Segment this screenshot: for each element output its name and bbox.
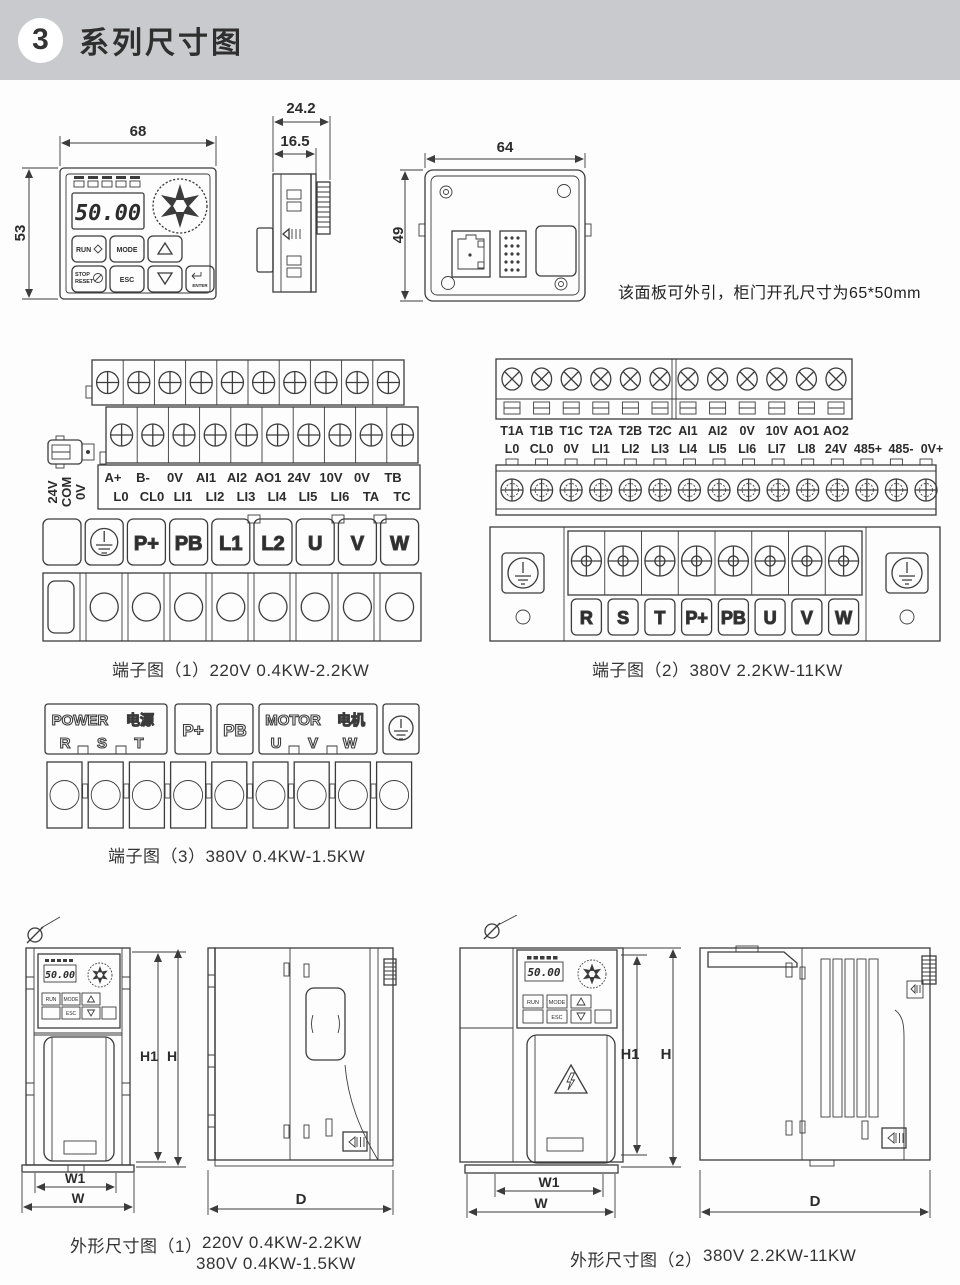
dim-W1: W1 (35, 1171, 116, 1193)
esc-button-label: ESC (120, 277, 134, 284)
terminal-label: LI4 (268, 489, 288, 504)
panel-note: 该面板可外引，柜门开孔尺寸为65*50mm (618, 279, 921, 303)
terminal-label: LI2 (206, 489, 225, 504)
esc-button-label: ESC (66, 1011, 77, 1017)
terminal-label: P+ (134, 533, 159, 555)
terminal-label: CL0 (530, 442, 554, 456)
dim-label: W (72, 1191, 85, 1206)
motor-group: MOTOR 电机 U V W (259, 704, 377, 754)
keypad-buttons: RUN MODE STOP RESET ESC ENTER (72, 236, 214, 292)
terminal-label: LI5 (709, 442, 727, 456)
terminal-label: PB (175, 533, 203, 555)
outline2-caption: 外形尺寸图（2） (570, 1246, 702, 1271)
terminal-label: 24V (287, 470, 310, 485)
terminal-label: 10V (319, 470, 342, 485)
seven-segment-display: 50.00 (72, 193, 144, 229)
terminal-label: B- (136, 470, 150, 485)
terminal-label: LI1 (592, 442, 610, 456)
terminal-label: LI5 (299, 489, 318, 504)
terminal-label: AI1 (678, 424, 698, 438)
run-diamond-icon (94, 245, 102, 253)
terminal-label: AI1 (196, 470, 216, 485)
screw-icons (501, 479, 937, 501)
terminal-label: 0V+ (921, 442, 944, 456)
terminal1-power-drawing: P+ PB L1 L2 U V W (35, 505, 455, 647)
power-en-label: POWER (52, 712, 109, 729)
nameplate (64, 1141, 96, 1154)
terminal3-caption: 端子图（3）380V 0.4KW-1.5KW (108, 842, 365, 867)
terminal-label: 0V (354, 470, 370, 485)
display-value: 50.00 (527, 966, 560, 979)
terminal2-caption: 端子图（2）380V 2.2KW-11KW (592, 656, 843, 681)
up-arrow-icon (158, 243, 172, 254)
terminal-label: TA (363, 489, 380, 504)
terminal-label: A+ (105, 470, 122, 485)
down-arrow-icon (158, 273, 172, 284)
terminal-label: LI3 (237, 489, 256, 504)
knob-icon (578, 960, 606, 988)
terminal-label: U (308, 533, 322, 555)
terminal-label: W (835, 608, 852, 628)
terminal-label: 24V (825, 442, 848, 456)
terminal-label: 485- (888, 442, 913, 456)
terminal-label: LI2 (621, 442, 639, 456)
dim-label: 68 (130, 123, 147, 140)
dim-label: 53 (12, 225, 29, 242)
dim-label: W1 (65, 1171, 86, 1186)
clamp-slots (504, 402, 844, 414)
terminal-label: 0V (564, 442, 580, 456)
terminal-label: L0 (505, 442, 520, 456)
warning-triangle-icon (555, 1065, 587, 1093)
base-flange (465, 1165, 618, 1173)
knob-side (317, 182, 330, 234)
terminal-label: T2C (648, 424, 672, 438)
terminal-label: W (390, 533, 409, 555)
terminal-label: V (351, 533, 365, 555)
reset-button-label: RESET (75, 279, 94, 285)
knob-side (384, 959, 396, 985)
dim-label: H (167, 1048, 177, 1064)
terminal-label: AI2 (708, 424, 728, 438)
power-group: POWER 电源 R S T (45, 704, 167, 754)
display-value: 50.00 (45, 970, 75, 981)
earth-icon (91, 529, 118, 556)
release-arrow-icon (283, 229, 300, 239)
terminal1-caption: 端子图（1）220V 0.4KW-2.2KW (112, 656, 369, 681)
rear-connector (257, 228, 273, 272)
terminal-label: T (134, 735, 143, 752)
outline1-side-drawing: D (200, 915, 405, 1220)
terminal-label: S (97, 735, 107, 752)
mini-keypad: 50.00 RUN MODE ESC (38, 954, 120, 1028)
status-led-row (74, 176, 140, 187)
dim-D: D (700, 1170, 930, 1218)
mid-strip-tabs (506, 459, 932, 465)
power-label-cells: P+ PB L1 L2 U V W (43, 515, 419, 565)
terminal-label: LI6 (738, 442, 756, 456)
terminal-label: 0V (740, 424, 756, 438)
dim-label: 49 (390, 227, 407, 244)
outline2-front-drawing: 50.00 RUN MODE ESC H1 (455, 915, 689, 1225)
terminal-label: CL0 (140, 489, 165, 504)
release-arrow-icon (882, 1128, 906, 1148)
front-cover (44, 1037, 114, 1161)
pin-header (500, 231, 526, 277)
terminal-label: PB (721, 608, 746, 628)
release-arrow-icon (907, 981, 923, 998)
terminal-label: AO1 (794, 424, 820, 438)
outline2-spec: 380V 2.2KW-11KW (703, 1246, 856, 1266)
terminal-label: TC (393, 489, 411, 504)
esc-button-label: ESC (551, 1015, 562, 1021)
terminal-label: 24V (45, 480, 60, 503)
dim-label: H1 (621, 1047, 640, 1063)
motor-en-label: MOTOR (265, 712, 321, 729)
power-block: R S T P+ PB U V W (490, 527, 940, 641)
terminal-label: LI1 (174, 489, 193, 504)
terminal-label: LI6 (331, 489, 350, 504)
dim-68: 68 (60, 123, 216, 166)
section-number-badge: 3 (18, 18, 63, 63)
keypad-side-drawing: 24.2 16.5 (243, 96, 347, 316)
potentiometer-knob-icon (153, 179, 207, 233)
outline1-caption: 外形尺寸图（1） (70, 1232, 202, 1257)
terminal-cover (708, 952, 797, 967)
terminal-label: T2B (619, 424, 643, 438)
motor-cn-label: 电机 (337, 712, 365, 728)
outline2-side-drawing: D (690, 915, 945, 1225)
terminal-label: R (60, 735, 71, 752)
drive-body (460, 948, 623, 1162)
terminal-label: TB (384, 470, 401, 485)
dim-53: 53 (12, 168, 58, 299)
vent-grille (821, 959, 878, 1117)
terminal-label: P+ (182, 721, 203, 740)
mounting-plate (311, 174, 316, 292)
terminal-label: L0 (113, 489, 128, 504)
terminal2-drawing: T1A T1B T1C T2A T2B T2C AI1 AI2 0V 10V A… (488, 355, 953, 655)
mode-button-label: MODE (64, 997, 80, 1003)
terminal1-row2-labels: L0 CL0 LI1 LI2 LI3 LI4 LI5 LI6 TA TC (113, 489, 411, 504)
front-cover (527, 1035, 615, 1163)
run-button-label: RUN (76, 247, 91, 254)
terminal-label: W (343, 735, 358, 752)
run-button-label: RUN (527, 1000, 539, 1006)
dim-label: 24.2 (286, 100, 315, 117)
dim-H1: H1 (621, 955, 647, 1155)
terminal-label: 0V (167, 470, 183, 485)
knob-icon (88, 963, 112, 987)
page: 3 系列尺寸图 68 53 50.00 (0, 0, 960, 1285)
mini-keypad: 50.00 RUN MODE ESC (517, 950, 617, 1028)
terminal2-row2-labels: L0 CL0 0V LI1 LI2 LI3 LI4 LI5 LI6 LI7 LI… (505, 442, 944, 456)
page-title: 系列尺寸图 (79, 18, 244, 62)
terminal-label: PB (223, 721, 247, 740)
module-slot (536, 226, 576, 276)
terminal3-drawing: POWER 电源 R S T P+ PB MOTOR 电机 U V W (35, 698, 425, 833)
terminal-label: 485+ (854, 442, 882, 456)
mode-button-label: MODE (549, 1000, 566, 1006)
terminal1-row1-labels: A+ B- 0V AI1 AI2 AO1 24V 10V 0V TB (105, 470, 402, 485)
terminal-block-row (47, 762, 412, 828)
terminal-label: S (617, 608, 629, 628)
run-button-label: RUN (46, 997, 57, 1003)
terminal-label: T1A (500, 424, 524, 438)
terminal-label: LI4 (679, 442, 697, 456)
power-terminal-block (43, 573, 421, 641)
dim-label: W1 (539, 1174, 560, 1190)
rj45-jack (452, 231, 490, 277)
terminal-label: T2A (589, 424, 613, 438)
terminal1-control-drawing: A+ B- 0V AI1 AI2 AO1 24V 10V 0V TB L0 CL… (40, 352, 460, 524)
dim-label: 64 (497, 139, 514, 156)
usb-connector (48, 436, 94, 468)
dim-label: 16.5 (280, 133, 309, 150)
enter-arrow-icon (192, 272, 201, 279)
terminal2-row1-labels: T1A T1B T1C T2A T2B T2C AI1 AI2 0V 10V A… (500, 424, 849, 438)
screw-icons (502, 368, 846, 390)
dim-label: D (296, 1191, 307, 1208)
terminal-label: LI8 (797, 442, 815, 456)
nameplate (547, 1138, 583, 1151)
terminal-label: P+ (685, 608, 708, 628)
terminal-label: 0V (73, 484, 88, 500)
dim-label: W (534, 1195, 548, 1211)
din-rail (208, 948, 215, 1160)
display-value: 50.00 (75, 201, 141, 226)
terminal-label: 10V (766, 424, 789, 438)
release-arrow-icon (343, 1132, 367, 1151)
spec-line: 380V 0.4KW-1.5KW (196, 1253, 362, 1274)
terminal-label: T (654, 608, 665, 628)
terminal-label: AI2 (227, 470, 247, 485)
ground-screw-left (502, 553, 544, 624)
section-header: 3 系列尺寸图 (0, 0, 960, 80)
outline1-front-drawing: 50.00 RUN MODE ESC H1 H (8, 915, 203, 1220)
terminal-label: R (580, 608, 593, 628)
power-label-cells (571, 599, 858, 635)
dim-label: H1 (140, 1048, 158, 1064)
keypad-back-drawing: 64 49 (388, 138, 603, 310)
mounting-screw-callout (484, 915, 517, 939)
stop-circle-icon (94, 274, 103, 283)
mode-button-label: MODE (117, 247, 138, 254)
dim-W1: W1 (495, 1174, 603, 1197)
terminal-label: COM (59, 477, 74, 507)
spec-line: 220V 0.4KW-2.2KW (202, 1232, 362, 1253)
terminal-label: T1C (559, 424, 583, 438)
mounting-screw-callout (27, 917, 60, 943)
terminal-label: L2 (261, 533, 284, 555)
power-cn-label: 电源 (126, 712, 154, 728)
terminal1-side-labels: 24V COM 0V (45, 477, 88, 507)
enter-button-label: ENTER (192, 283, 208, 288)
dim-label: H (661, 1046, 672, 1063)
ground-screw-right (886, 553, 928, 624)
terminal-label: V (801, 608, 813, 628)
terminal-label: LI3 (651, 442, 669, 456)
knob-side (922, 956, 936, 984)
terminal-label: L1 (219, 533, 242, 555)
terminal-label: LI7 (768, 442, 786, 456)
terminal-label: AO2 (823, 424, 849, 438)
keypad-front-drawing: 68 53 50.00 RUN MODE (8, 96, 240, 318)
dim-label: D (810, 1193, 821, 1210)
terminal-label: T1B (530, 424, 554, 438)
terminal-label: AO1 (255, 470, 282, 485)
terminal-label: V (308, 735, 318, 752)
outline1-specs: 220V 0.4KW-2.2KW 380V 0.4KW-1.5KW (202, 1232, 362, 1274)
stop-button-label: STOP (75, 272, 90, 278)
earth-icon (383, 704, 419, 754)
dim-D: D (208, 1170, 393, 1215)
terminal-label: U (271, 735, 282, 752)
terminal-label: U (764, 608, 777, 628)
